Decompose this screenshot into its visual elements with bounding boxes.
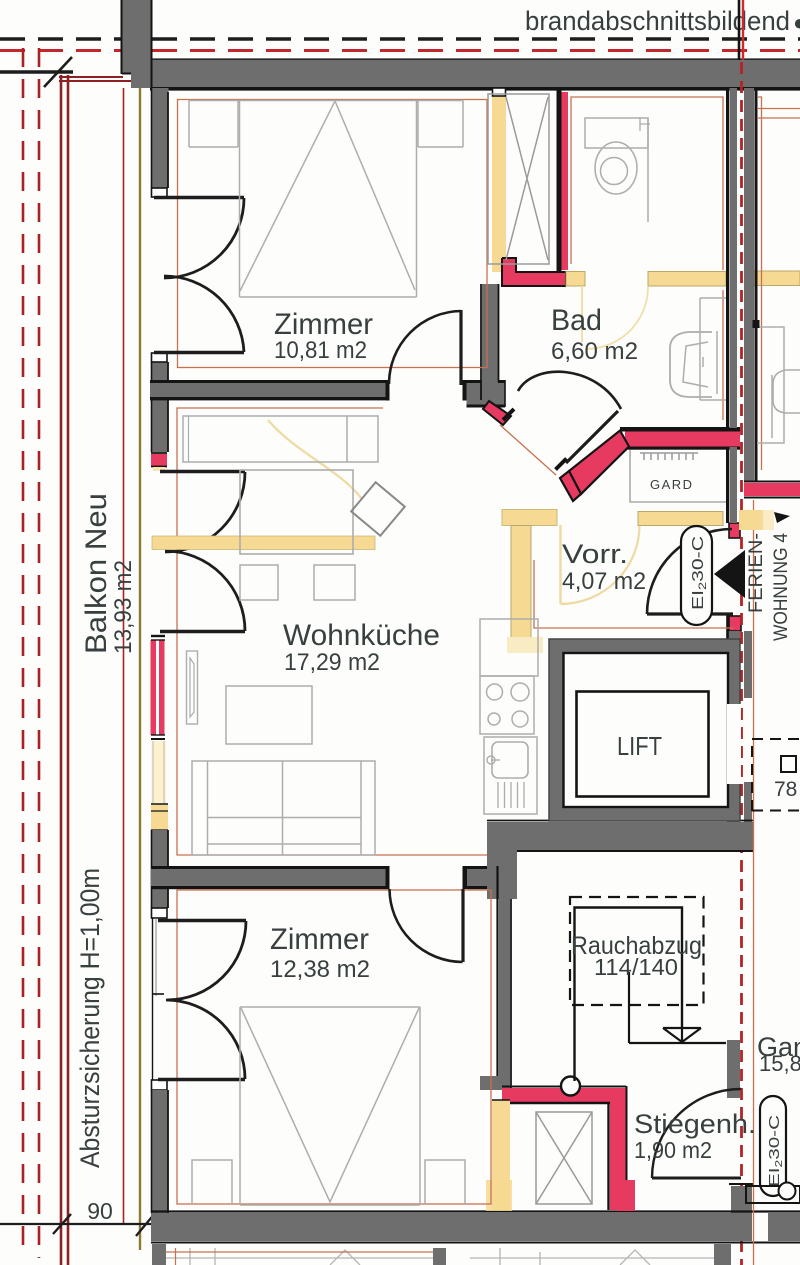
svg-text:10,81 m2: 10,81 m2 — [274, 337, 367, 364]
svg-text:Wohnküche: Wohnküche — [283, 619, 440, 652]
svg-text:Bad: Bad — [551, 304, 602, 337]
svg-text:90: 90 — [87, 1198, 113, 1224]
svg-text:EI230-C: EI230-C — [766, 1115, 785, 1187]
svg-text:Balkon Neu: Balkon Neu — [80, 493, 113, 654]
svg-text:brandabschnittsbildend: brandabschnittsbildend — [525, 6, 790, 36]
svg-text:114/140: 114/140 — [594, 954, 678, 980]
svg-text:17,29 m2: 17,29 m2 — [284, 649, 380, 676]
svg-text:15,87: 15,87 — [759, 1051, 800, 1076]
svg-text:LIFT: LIFT — [617, 731, 662, 761]
svg-text:FERIEN-: FERIEN- — [746, 533, 767, 613]
svg-text:GARD: GARD — [650, 477, 694, 492]
svg-text:78: 78 — [774, 778, 797, 801]
svg-text:6,60 m2: 6,60 m2 — [551, 338, 638, 365]
svg-text:Zimmer: Zimmer — [270, 923, 369, 956]
svg-text:Absturzsicherung H=1,00m: Absturzsicherung H=1,00m — [75, 868, 105, 1168]
svg-text:1,90 m2: 1,90 m2 — [634, 1137, 712, 1163]
svg-text:12,38 m2: 12,38 m2 — [270, 956, 370, 983]
svg-text:4,07 m2: 4,07 m2 — [562, 568, 646, 595]
svg-text:WOHNUNG 4: WOHNUNG 4 — [771, 533, 792, 641]
svg-text:Stiegenh.: Stiegenh. — [634, 1109, 756, 1139]
svg-text:EI230-C: EI230-C — [690, 536, 709, 610]
svg-text:Vorr.: Vorr. — [562, 539, 628, 569]
svg-text:●: ● — [793, 10, 800, 35]
svg-text:13,93 m2: 13,93 m2 — [110, 560, 137, 654]
